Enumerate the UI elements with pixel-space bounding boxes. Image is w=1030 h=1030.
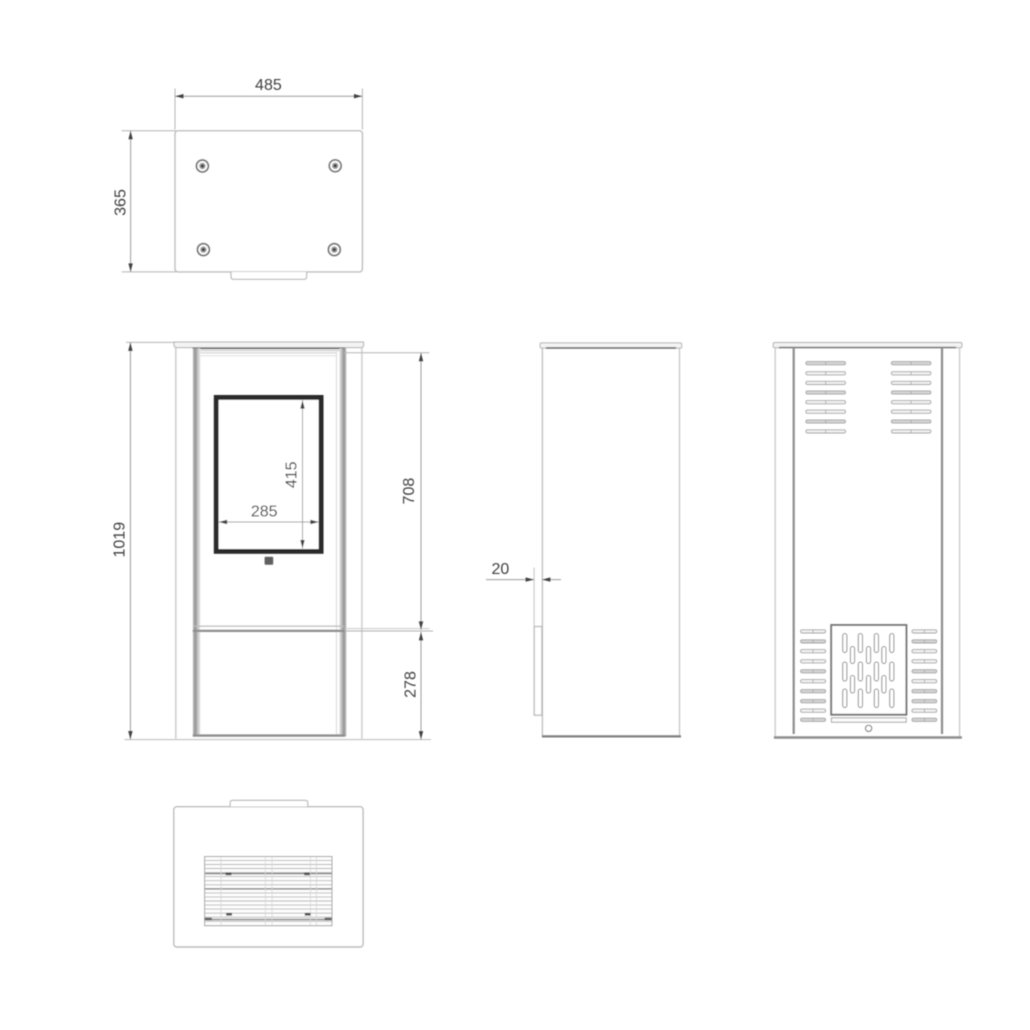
svg-text:415: 415 — [284, 461, 301, 488]
svg-text:278: 278 — [403, 671, 420, 698]
svg-text:485: 485 — [255, 77, 282, 94]
svg-text:708: 708 — [401, 478, 418, 505]
svg-text:1019: 1019 — [111, 522, 128, 558]
svg-text:20: 20 — [492, 561, 510, 578]
svg-text:285: 285 — [251, 503, 278, 520]
svg-text:365: 365 — [112, 189, 129, 216]
